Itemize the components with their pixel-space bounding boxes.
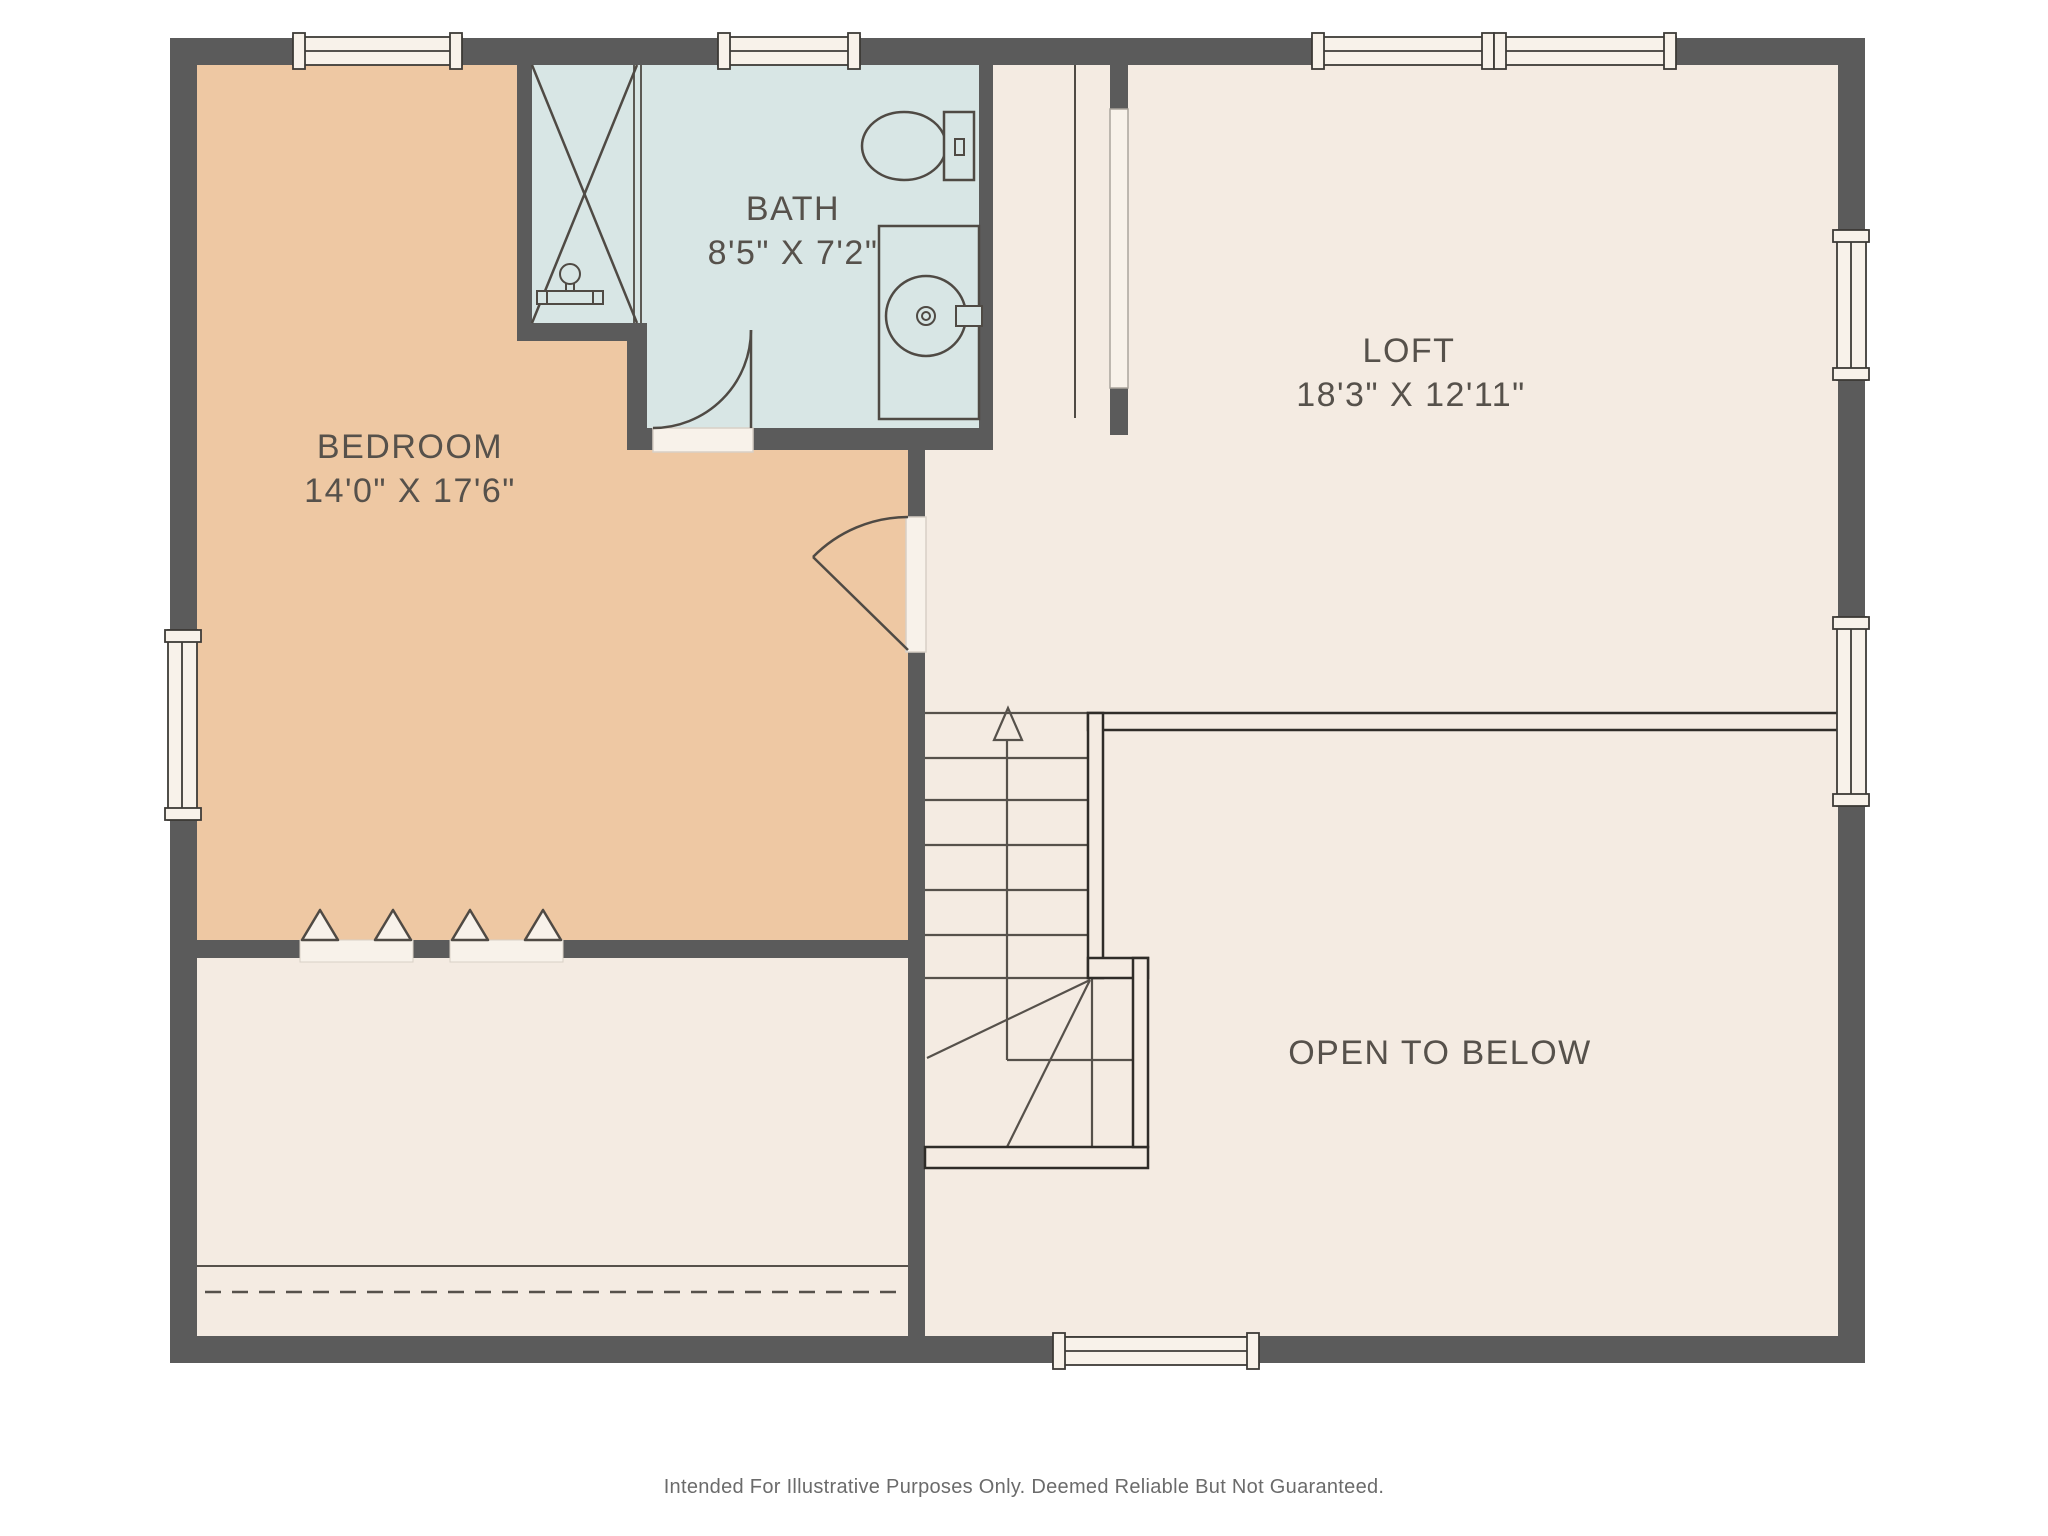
window-right-upper [1833,230,1869,380]
wall-bath-right [979,65,993,450]
bedroom-dimensions: 14'0" X 17'6" [304,472,516,510]
closet-threshold-left [300,940,413,962]
bath-dimensions: 8'5" X 7'2" [708,234,879,272]
window-cap [1312,33,1324,69]
closet-cased-opening [1110,109,1128,388]
sink-drain-inner [922,312,930,320]
railing-lower [1133,958,1148,1147]
window-cap [450,33,462,69]
wall-closet-stub-bottom [1110,388,1128,435]
loft-label: LOFT [1363,332,1456,370]
window-left-bedroom [165,630,201,820]
window-top-bath [718,33,860,69]
window-top-bedroom [293,33,462,69]
sink-faucet [956,306,982,326]
floor-plan-page: BATH 8'5" X 7'2" BEDROOM 14'0" X 17'6" L… [0,0,2048,1536]
wall-below-shower [517,323,647,341]
toilet-fixture [862,112,974,180]
window-cap [1833,617,1869,629]
bath-label: BATH [746,190,840,228]
window-cap [848,33,860,69]
window-cap [1247,1333,1259,1369]
floor-plan: BATH 8'5" X 7'2" BEDROOM 14'0" X 17'6" L… [0,0,2048,1536]
closet-threshold-right [450,940,563,962]
bath-door-threshold [653,428,753,452]
window-bottom [1053,1333,1259,1369]
window-cap [1833,794,1869,806]
stair-bottom-step [925,1147,1148,1168]
window-cap [1494,33,1506,69]
window-cap [165,630,201,642]
window-cap [1053,1333,1065,1369]
wall-bedroom-bottom-2 [413,940,450,958]
bedroom-label: BEDROOM [317,428,503,466]
vanity-sink-fixture [879,226,982,419]
open-to-below-label: OPEN TO BELOW [1288,1034,1592,1072]
window-cap [1482,33,1494,69]
wall-bedroom-bottom-3 [563,940,908,958]
wall-bedroom-right-upper [908,450,925,517]
shower-head-icon [560,264,580,284]
window-cap [293,33,305,69]
toilet-flush-button [955,139,964,155]
wall-closet-stub-top [1110,65,1128,109]
window-right-lower [1833,617,1869,806]
window-cap [165,808,201,820]
window-cap [1833,368,1869,380]
window-cap [1833,230,1869,242]
wall-bath-step [627,341,647,450]
wall-bedroom-bottom-1 [197,940,300,958]
wall-shower-left [517,65,532,341]
toilet-bowl [862,112,946,180]
railing-top [1088,713,1838,730]
disclaimer-text: Intended For Illustrative Purposes Only.… [0,1476,2048,1499]
floor-areas [197,65,1838,1336]
loft-dimensions: 18'3" X 12'11" [1296,376,1526,414]
railing-side [1088,713,1103,978]
wall-bottom [170,1336,1865,1363]
window-cap [718,33,730,69]
bedroom-door-opening [906,517,926,652]
window-cap [1664,33,1676,69]
wall-bedroom-right-lower [908,652,925,1336]
window-top-loft-double [1312,33,1676,69]
wall-bath-bottom [753,428,993,450]
